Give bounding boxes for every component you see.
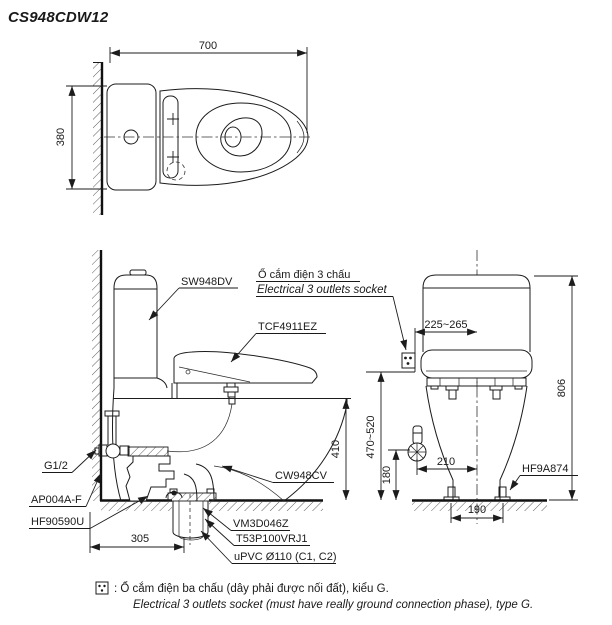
dim-225-265: 225~265	[424, 319, 467, 331]
svg-text:CW948CV: CW948CV	[275, 470, 328, 482]
wall-section-side	[92, 250, 101, 501]
wall-section-top	[93, 62, 102, 215]
floor-flange	[168, 493, 216, 501]
socket-symbol-legend	[96, 582, 108, 594]
dim-180: 180	[381, 466, 393, 484]
socket-symbol	[402, 353, 415, 368]
dim-210: 210	[437, 456, 455, 468]
svg-text:VM3D046Z: VM3D046Z	[233, 518, 289, 530]
svg-text:T53P100VRJ1: T53P100VRJ1	[236, 533, 308, 545]
dim-700: 700	[199, 40, 217, 52]
svg-text:AP004A-F: AP004A-F	[31, 494, 82, 506]
svg-text:SW948DV: SW948DV	[181, 276, 233, 288]
dim-410: 410	[330, 440, 342, 458]
dim-470-520: 470~520	[365, 415, 377, 458]
technical-drawing: CS948CDW12 700	[0, 0, 612, 625]
braided-hose	[128, 447, 168, 456]
page-title: CS948CDW12	[8, 9, 109, 26]
svg-text:HF90590U: HF90590U	[31, 516, 84, 528]
footnote-vi: : Ổ cắm điện ba chấu (dây phải được nối …	[114, 582, 389, 595]
svg-text:HF9A874: HF9A874	[522, 463, 568, 475]
floor-section-side	[100, 501, 323, 512]
svg-text:Electrical 3 outlets socket: Electrical 3 outlets socket	[257, 284, 388, 296]
svg-text:TCF4911EZ: TCF4911EZ	[258, 321, 317, 333]
dim-190: 190	[468, 504, 486, 516]
svg-text:uPVC Ø110 (C1, C2): uPVC Ø110 (C1, C2)	[234, 551, 337, 563]
dim-806: 806	[556, 379, 568, 397]
dim-380: 380	[55, 128, 67, 146]
svg-text:G1/2: G1/2	[44, 460, 68, 472]
svg-text:Ổ cắm điện 3 chấu: Ổ cắm điện 3 chấu	[258, 268, 350, 281]
dim-305: 305	[131, 533, 149, 545]
footnote-en: Electrical 3 outlets socket (must have r…	[133, 599, 533, 611]
tank-front	[423, 275, 530, 352]
